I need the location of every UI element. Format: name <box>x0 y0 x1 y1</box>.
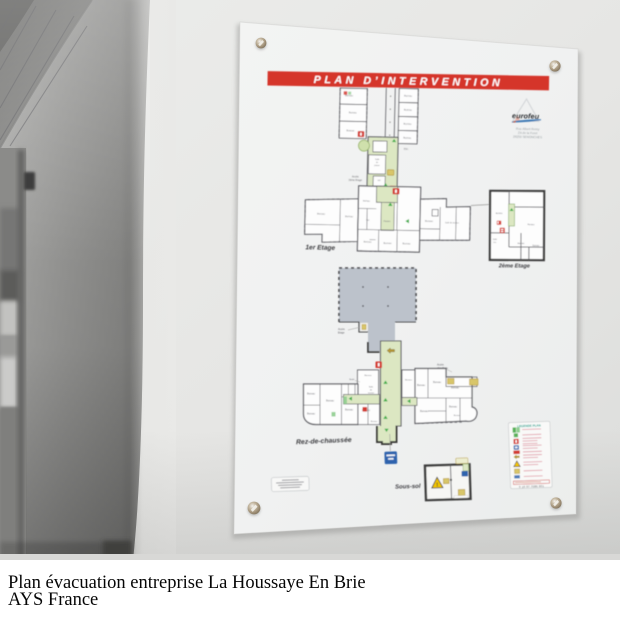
svg-text:de: de <box>370 390 372 392</box>
svg-text:Bureau: Bureau <box>404 109 413 112</box>
svg-text:Bureau: Bureau <box>371 421 377 423</box>
svg-text:Bureau: Bureau <box>349 111 358 114</box>
svg-text:Sous-sol: Sous-sol <box>395 484 421 491</box>
svg-text:28250 SENONCHES: 28250 SENONCHES <box>513 135 542 140</box>
svg-text:!: ! <box>436 482 438 488</box>
svg-text:Bureau: Bureau <box>403 242 412 245</box>
svg-text:Bureau: Bureau <box>449 406 458 409</box>
svg-text:Bureau: Bureau <box>451 387 460 390</box>
svg-text:Bureau: Bureau <box>307 393 316 396</box>
svg-text:Bur.: Bur. <box>366 220 370 222</box>
svg-text:Bureau: Bureau <box>404 95 413 98</box>
svg-text:Accès: Accès <box>338 328 346 331</box>
svg-text:AYS France: AYS France <box>8 590 98 610</box>
svg-text:Esc.: Esc. <box>404 148 409 151</box>
svg-text:Bureau: Bureau <box>346 129 355 132</box>
svg-text:eurofeu: eurofeu <box>512 111 540 121</box>
svg-text:2ème Etage: 2ème Etage <box>348 179 362 182</box>
svg-text:Bureau: Bureau <box>417 384 426 387</box>
svg-text:Bureau: Bureau <box>384 242 393 245</box>
svg-text:Accès: Accès <box>352 175 360 178</box>
svg-text:Accès: Accès <box>437 364 445 367</box>
svg-text:pause: pause <box>374 165 380 167</box>
svg-text:1er Etage: 1er Etage <box>305 244 335 252</box>
svg-text:Bureau: Bureau <box>433 381 442 384</box>
svg-text:Bureau: Bureau <box>425 220 434 223</box>
svg-text:Bureau: Bureau <box>326 400 335 403</box>
svg-text:LEGENDE PLAN: LEGENDE PLAN <box>517 423 541 428</box>
svg-text:Bureau: Bureau <box>345 215 354 218</box>
svg-text:Bureau: Bureau <box>403 137 412 140</box>
svg-text:Bureau: Bureau <box>345 409 354 412</box>
svg-text:2ème Etage: 2ème Etage <box>498 263 530 269</box>
svg-text:Bureau: Bureau <box>454 415 460 417</box>
svg-text:Bureau: Bureau <box>307 413 316 416</box>
svg-text:Salle: Salle <box>493 239 497 241</box>
svg-text:Bureau: Bureau <box>317 213 326 216</box>
svg-text:Bureau: Bureau <box>404 123 413 126</box>
svg-text:Etage: Etage <box>338 331 345 334</box>
svg-text:Bureau: Bureau <box>420 410 429 413</box>
svg-text:Salle: Salle <box>369 387 373 389</box>
svg-text:Bureau: Bureau <box>364 240 373 243</box>
